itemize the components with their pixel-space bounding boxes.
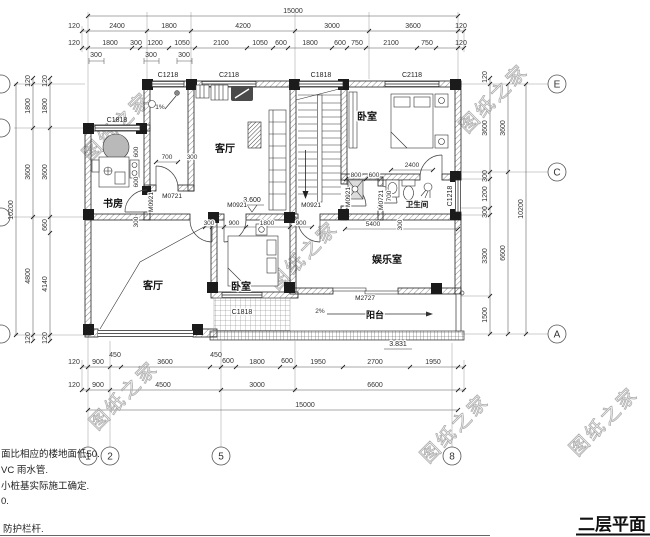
tv-unit [248,122,261,148]
level-balcony: 3.831 [389,341,407,348]
stair-direction-arrow [303,191,309,199]
sliding-door-m2727 [333,288,398,294]
window-c1218-right [455,180,461,212]
window-label: C2118 [219,72,239,79]
room-label-living-lower: 客厅 [142,279,163,292]
side-table [196,85,209,98]
dim-text: 300 [204,220,215,227]
dim-text: 1500 [482,307,489,323]
dim-text: 3000 [249,382,265,389]
note-line: 0. [1,496,9,507]
room-label-bath: 卫生间 [406,199,429,209]
dim-text: 1800 [25,98,32,114]
door-label: M2727 [355,295,375,302]
dim-text: 660 [42,219,49,231]
grid-bubble-partial [0,325,10,343]
drawing-title: 二层平面 [578,515,646,534]
dim-text: 1800 [260,220,275,227]
dim-text: 600 [133,176,140,187]
grid-bubble-label: A [554,330,561,341]
dim-text: 900 [296,220,307,227]
slope-1pct: 1% [155,104,165,111]
dimensions-top: 15000 120 2400 1800 4200 3000 3600 120 1… [68,8,467,59]
slope-2pct: 2% [315,308,325,315]
room-label-study: 书房 [103,197,123,210]
window-label: C1218 [158,72,179,79]
dim-text: 900 [92,382,104,389]
dim-text: 300 [145,52,157,59]
watermark-text: 图纸之家 [565,383,643,461]
room-label-living-upper: 客厅 [214,142,235,155]
dim-text: 2700 [367,359,383,366]
dim-text: 3300 [482,248,489,264]
dim-text: 5400 [366,221,381,228]
dim-text: 800 [351,172,362,179]
balcony-railing [210,331,464,340]
watermark-text: 图纸之家 [455,60,533,138]
grid-bubble-partial [0,119,10,137]
dim-text: 4200 [235,23,251,30]
dim-text: 300 [178,52,190,59]
window-label: C1218 [447,186,454,207]
room-label-bedroom-lower: 卧室 [231,280,251,293]
dim-text: 300 [187,154,198,161]
dim-text: 1950 [425,359,441,366]
dim-text: 120 [455,23,467,30]
door-label: M0921 [301,202,321,209]
room-label-balcony: 阳台 [366,309,384,320]
balcony-side-rail [456,294,461,331]
grid-bubble-label: 8 [449,452,455,463]
dim-text: 450 [210,352,222,359]
dim-text: 3600 [157,359,173,366]
floor-plan-drawing: 图纸之家 图纸之家 图纸之家 图纸之家 图纸之家 图纸之家 [0,0,650,537]
dim-text: 2400 [405,162,420,169]
title-block: 二层平面 [0,515,650,536]
void-fold-line [100,222,213,329]
grid-bubble-label: C [553,168,560,179]
dim-text: 10200 [518,199,525,219]
dim-text: 120 [482,71,489,83]
window-label: C2118 [402,72,422,79]
dim-text: 600 [369,172,380,179]
dim-text: 4800 [25,268,32,284]
dim-text: 1050 [252,40,268,47]
dim-text: 15000 [283,8,303,15]
dim-text: 450 [109,352,121,359]
dim-text: 2400 [109,23,125,30]
dim-text: 600 [222,358,234,365]
dim-text: 3000 [324,23,340,30]
door-arc-bedroom-upper [420,155,442,177]
dim-text: 120 [455,40,467,47]
dim-text: 600 [275,40,287,47]
dim-text: 1800 [102,40,118,47]
toilet-tank [402,180,415,186]
dim-text: 600 [133,146,140,157]
door-label: M0721 [378,190,385,210]
dim-text: 10200 [8,200,15,220]
study-chair [103,134,129,160]
note-line: VC 雨水管. [1,464,48,476]
dim-text: 300 [482,170,489,182]
stairs [296,88,343,202]
side-table [211,85,228,100]
dim-text: 3600 [42,164,49,180]
dim-text: 600 [334,40,346,47]
dim-text: 3600 [25,164,32,180]
dim-text: 120 [68,40,80,47]
dim-text: 6600 [367,382,383,389]
window-c1818-stair [299,81,343,87]
room-label-entertainment: 娱乐室 [372,253,402,266]
dim-text: 120 [25,332,32,344]
dim-text: 15000 [295,402,315,409]
door-label: M0921 [227,202,247,209]
drawing-sheet: 图纸之家 图纸之家 图纸之家 图纸之家 图纸之家 图纸之家 [0,0,650,537]
door-label: M0921 [345,187,352,207]
dim-text: 1800 [161,23,177,30]
shower-head [424,183,432,191]
window-band-living-lower [98,330,193,337]
door-label: M0921 [148,192,155,212]
dim-text: 1800 [42,98,49,114]
window-c2118-bedroom [385,81,439,87]
dim-text: 2100 [213,40,229,47]
dim-text: 6600 [500,245,507,261]
note-line: 小桩基实际施工确定. [1,480,89,492]
room-label-bedroom-upper: 卧室 [357,110,377,123]
grid-bubble-label: 2 [107,452,113,463]
dim-text: 900 [92,359,104,366]
dim-text: 3600 [405,23,421,30]
window-label: C1818 [311,72,332,79]
dim-text: 300 [397,219,404,230]
grid-bubble-label: 5 [218,452,224,463]
dim-text: 600 [281,358,293,365]
dim-text: 900 [229,220,240,227]
dim-text: 300 [482,206,489,218]
study-side-chair [92,160,99,172]
sofa [269,110,286,210]
toilet [404,186,414,200]
dim-text: 4500 [155,382,171,389]
note-line: 面比相应的楼地面低50. [1,448,100,460]
dim-text: 3600 [500,120,507,136]
dim-text: 1200 [147,40,163,47]
dim-text: 700 [162,154,173,161]
window-label: C1818 [107,117,128,124]
dim-text: 750 [351,40,363,47]
dim-text: 120 [68,23,80,30]
watermark-text: 图纸之家 [85,357,163,435]
dim-text: 120 [25,75,32,87]
window-c1818-study [95,125,140,131]
dim-text: 2100 [383,40,399,47]
dim-text: 120 [42,332,49,344]
watermark-text: 图纸之家 [416,390,494,468]
dim-text: 700 [386,190,393,201]
dim-text: 300 [130,40,142,47]
dim-text: 120 [42,75,49,87]
dim-text: 3600 [482,120,489,136]
dim-text: 1050 [174,40,190,47]
dim-text: 1800 [249,359,265,366]
dim-text: 120 [68,382,80,389]
dimensions-left: 120 1800 3600 4800 120 120 1800 3600 660… [8,75,49,344]
dim-text: 1200 [482,186,489,202]
dim-text: 120 [68,359,80,366]
dim-text: 1800 [302,40,318,47]
window-label: C1818 [232,309,253,316]
dim-text: 1950 [310,359,326,366]
window-c1218-top [152,81,184,87]
grid-bubble-label: E [554,80,561,91]
dim-text: 300 [90,52,102,59]
note-line: 防护栏杆. [3,523,44,535]
door-label: M0721 [162,193,182,200]
door-arc-tlroom [156,166,178,188]
grid-bubble-partial [0,75,10,93]
dim-text: 750 [421,40,433,47]
dim-text: 300 [133,216,140,227]
dim-text: 4140 [42,276,49,292]
